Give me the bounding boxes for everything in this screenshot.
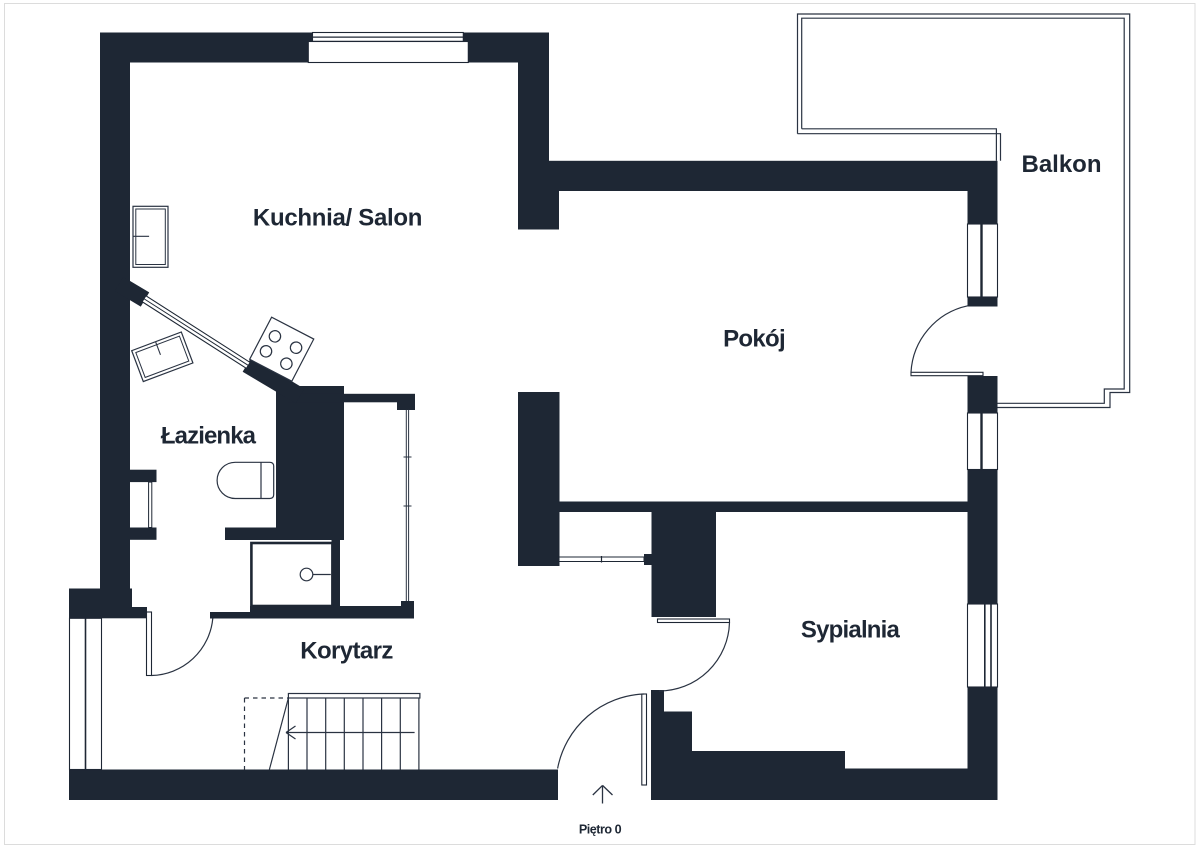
svg-text:Piętro 0: Piętro 0: [579, 823, 622, 837]
svg-text:Balkon: Balkon: [1021, 151, 1101, 178]
svg-text:Łazienka: Łazienka: [161, 423, 257, 450]
svg-text:Sypialnia: Sypialnia: [801, 617, 901, 644]
svg-text:Kuchnia/ Salon: Kuchnia/ Salon: [253, 205, 422, 232]
svg-text:Korytarz: Korytarz: [300, 638, 393, 665]
svg-text:Pokój: Pokój: [723, 326, 785, 353]
